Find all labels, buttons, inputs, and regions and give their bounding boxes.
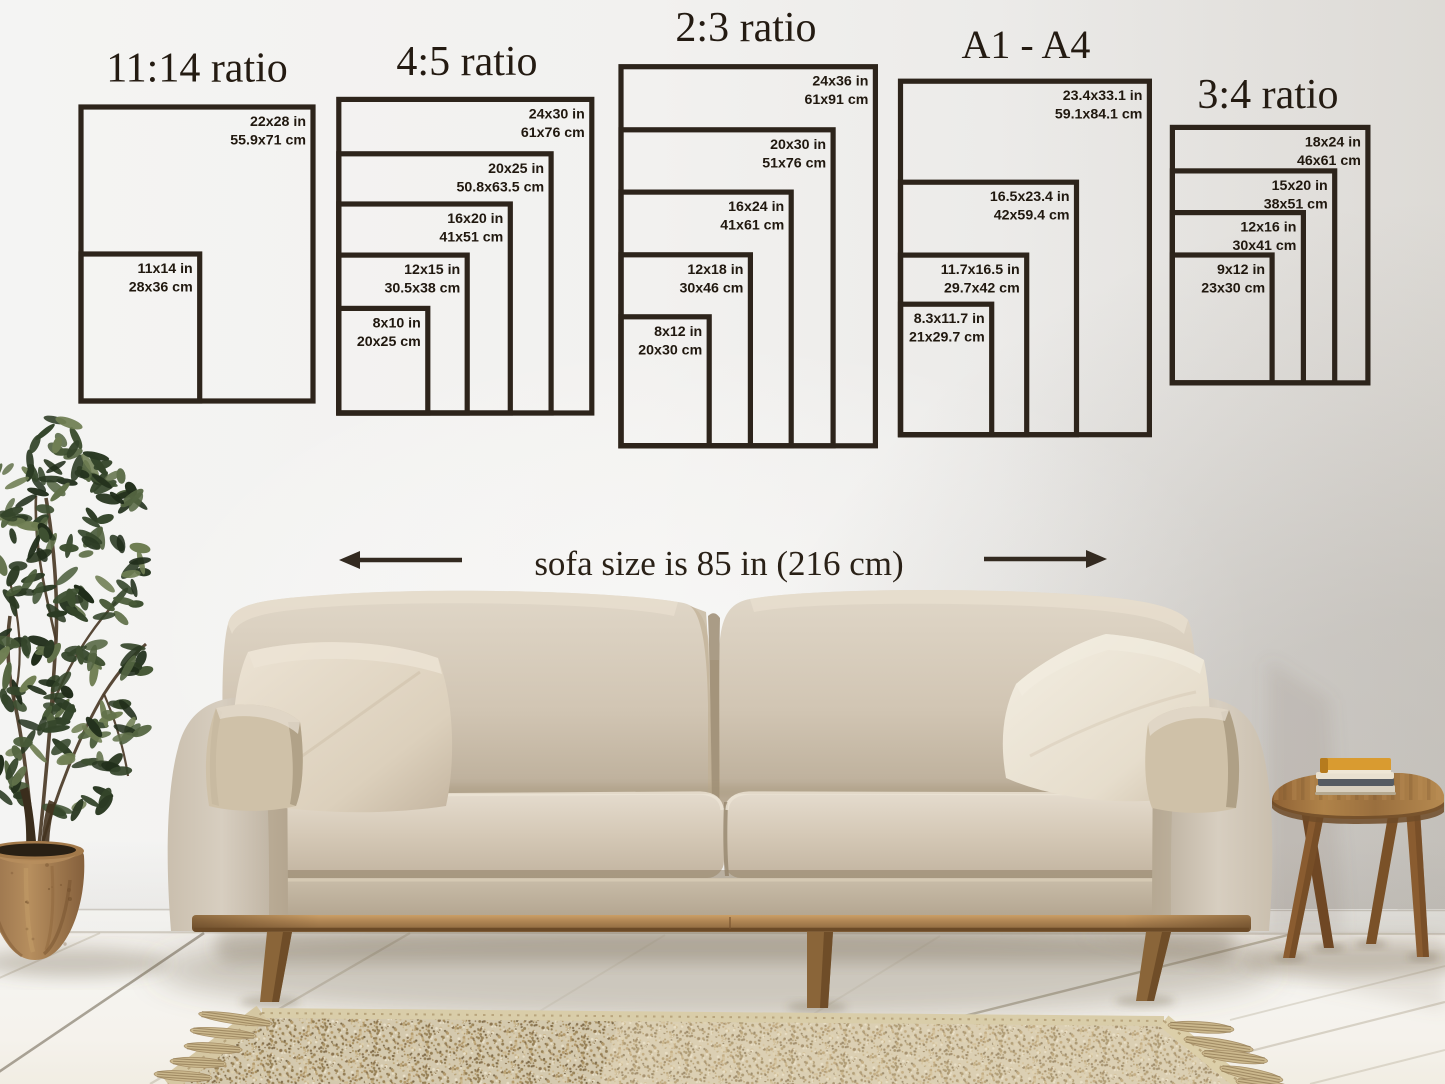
svg-text:30x41 cm: 30x41 cm bbox=[1232, 238, 1296, 254]
svg-text:16.5x23.4 in: 16.5x23.4 in bbox=[990, 189, 1070, 205]
svg-text:11x14 in: 11x14 in bbox=[137, 261, 192, 277]
svg-text:20x25 in: 20x25 in bbox=[488, 161, 544, 177]
svg-text:8x10 in: 8x10 in bbox=[373, 315, 421, 331]
svg-text:18x24 in: 18x24 in bbox=[1305, 134, 1361, 150]
svg-text:61x76 cm: 61x76 cm bbox=[521, 125, 585, 141]
svg-text:12x15 in: 12x15 in bbox=[404, 262, 460, 278]
svg-text:46x61 cm: 46x61 cm bbox=[1297, 153, 1361, 169]
svg-text:41x61 cm: 41x61 cm bbox=[720, 218, 784, 234]
svg-text:12x18 in: 12x18 in bbox=[687, 262, 743, 278]
svg-text:11:14 ratio: 11:14 ratio bbox=[106, 46, 288, 92]
svg-text:4:5 ratio: 4:5 ratio bbox=[396, 39, 537, 85]
svg-text:20x25 cm: 20x25 cm bbox=[357, 334, 421, 350]
svg-text:23.4x33.1 in: 23.4x33.1 in bbox=[1063, 88, 1143, 104]
svg-text:42x59.4 cm: 42x59.4 cm bbox=[994, 208, 1070, 224]
svg-text:3:4 ratio: 3:4 ratio bbox=[1197, 72, 1338, 118]
svg-text:sofa size is 85 in (216 cm): sofa size is 85 in (216 cm) bbox=[534, 544, 903, 583]
svg-text:11.7x16.5 in: 11.7x16.5 in bbox=[941, 262, 1020, 278]
svg-text:55.9x71 cm: 55.9x71 cm bbox=[230, 133, 306, 149]
svg-text:8x12 in: 8x12 in bbox=[654, 324, 702, 340]
svg-text:21x29.7 cm: 21x29.7 cm bbox=[909, 330, 985, 346]
svg-text:50.8x63.5 cm: 50.8x63.5 cm bbox=[457, 179, 545, 195]
svg-text:15x20 in: 15x20 in bbox=[1272, 178, 1328, 194]
svg-text:12x16 in: 12x16 in bbox=[1240, 220, 1296, 236]
svg-text:A1 - A4: A1 - A4 bbox=[962, 22, 1091, 67]
svg-text:51x76 cm: 51x76 cm bbox=[762, 155, 826, 171]
svg-text:59.1x84.1 cm: 59.1x84.1 cm bbox=[1055, 107, 1143, 123]
svg-text:24x36 in: 24x36 in bbox=[812, 74, 868, 90]
svg-text:38x51 cm: 38x51 cm bbox=[1264, 196, 1328, 212]
svg-text:30.5x38 cm: 30.5x38 cm bbox=[384, 281, 460, 297]
svg-text:28x36 cm: 28x36 cm bbox=[129, 280, 193, 296]
svg-text:61x91 cm: 61x91 cm bbox=[804, 92, 868, 108]
svg-text:16x20 in: 16x20 in bbox=[447, 211, 503, 227]
svg-text:20x30 cm: 20x30 cm bbox=[638, 342, 702, 358]
svg-text:20x30 in: 20x30 in bbox=[770, 137, 826, 153]
svg-text:23x30 cm: 23x30 cm bbox=[1201, 281, 1265, 297]
svg-text:24x30 in: 24x30 in bbox=[529, 106, 585, 122]
svg-text:2:3 ratio: 2:3 ratio bbox=[675, 5, 816, 51]
svg-text:8.3x11.7 in: 8.3x11.7 in bbox=[914, 311, 985, 327]
svg-text:30x46 cm: 30x46 cm bbox=[679, 280, 743, 296]
svg-text:29.7x42 cm: 29.7x42 cm bbox=[944, 281, 1020, 297]
svg-text:9x12 in: 9x12 in bbox=[1217, 262, 1265, 278]
svg-text:16x24 in: 16x24 in bbox=[728, 199, 784, 215]
svg-text:41x51 cm: 41x51 cm bbox=[439, 230, 503, 246]
svg-text:22x28 in: 22x28 in bbox=[250, 114, 306, 130]
